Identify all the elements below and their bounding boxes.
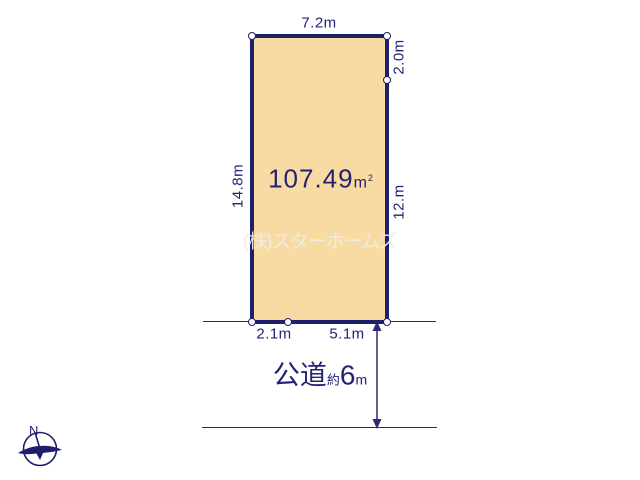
dimension-top: 7.2m bbox=[301, 15, 336, 32]
road-label: 公道 約 6 m bbox=[273, 354, 367, 393]
corner-marker-right-mid bbox=[383, 76, 391, 84]
watermark-text: (株)スターホームズ bbox=[243, 227, 397, 254]
compass-north-icon: N bbox=[15, 420, 65, 472]
area-label: 107.49m2 bbox=[268, 164, 374, 195]
road-label-unit: m bbox=[355, 372, 367, 388]
road-width-arrow bbox=[369, 320, 385, 430]
dimension-right-upper: 2.0m bbox=[391, 39, 408, 74]
area-unit-superscript: 2 bbox=[368, 173, 374, 183]
road-label-value: 6 bbox=[340, 360, 356, 392]
corner-marker-bottom-right bbox=[383, 318, 391, 326]
area-unit: m bbox=[354, 175, 368, 192]
dimension-bottom-left: 2.1m bbox=[256, 326, 291, 343]
road-label-approx: 約 bbox=[327, 370, 340, 389]
dimension-bottom-right: 5.1m bbox=[329, 326, 364, 343]
corner-marker-top-right bbox=[383, 32, 391, 40]
corner-marker-bottom-left bbox=[248, 318, 256, 326]
corner-marker-bottom-mid bbox=[284, 318, 292, 326]
plot-diagram: (株)スターホームズ 107.49m2 7.2m 2.0m 12.m 14.8m… bbox=[0, 0, 640, 480]
dimension-right-lower: 12.m bbox=[391, 184, 408, 219]
road-edge-line-far bbox=[202, 427, 437, 428]
dimension-left: 14.8m bbox=[230, 164, 247, 208]
road-label-main: 公道 bbox=[273, 354, 327, 393]
compass-north-label: N bbox=[29, 423, 38, 438]
corner-marker-top-left bbox=[248, 32, 256, 40]
area-value: 107.49 bbox=[268, 164, 354, 194]
